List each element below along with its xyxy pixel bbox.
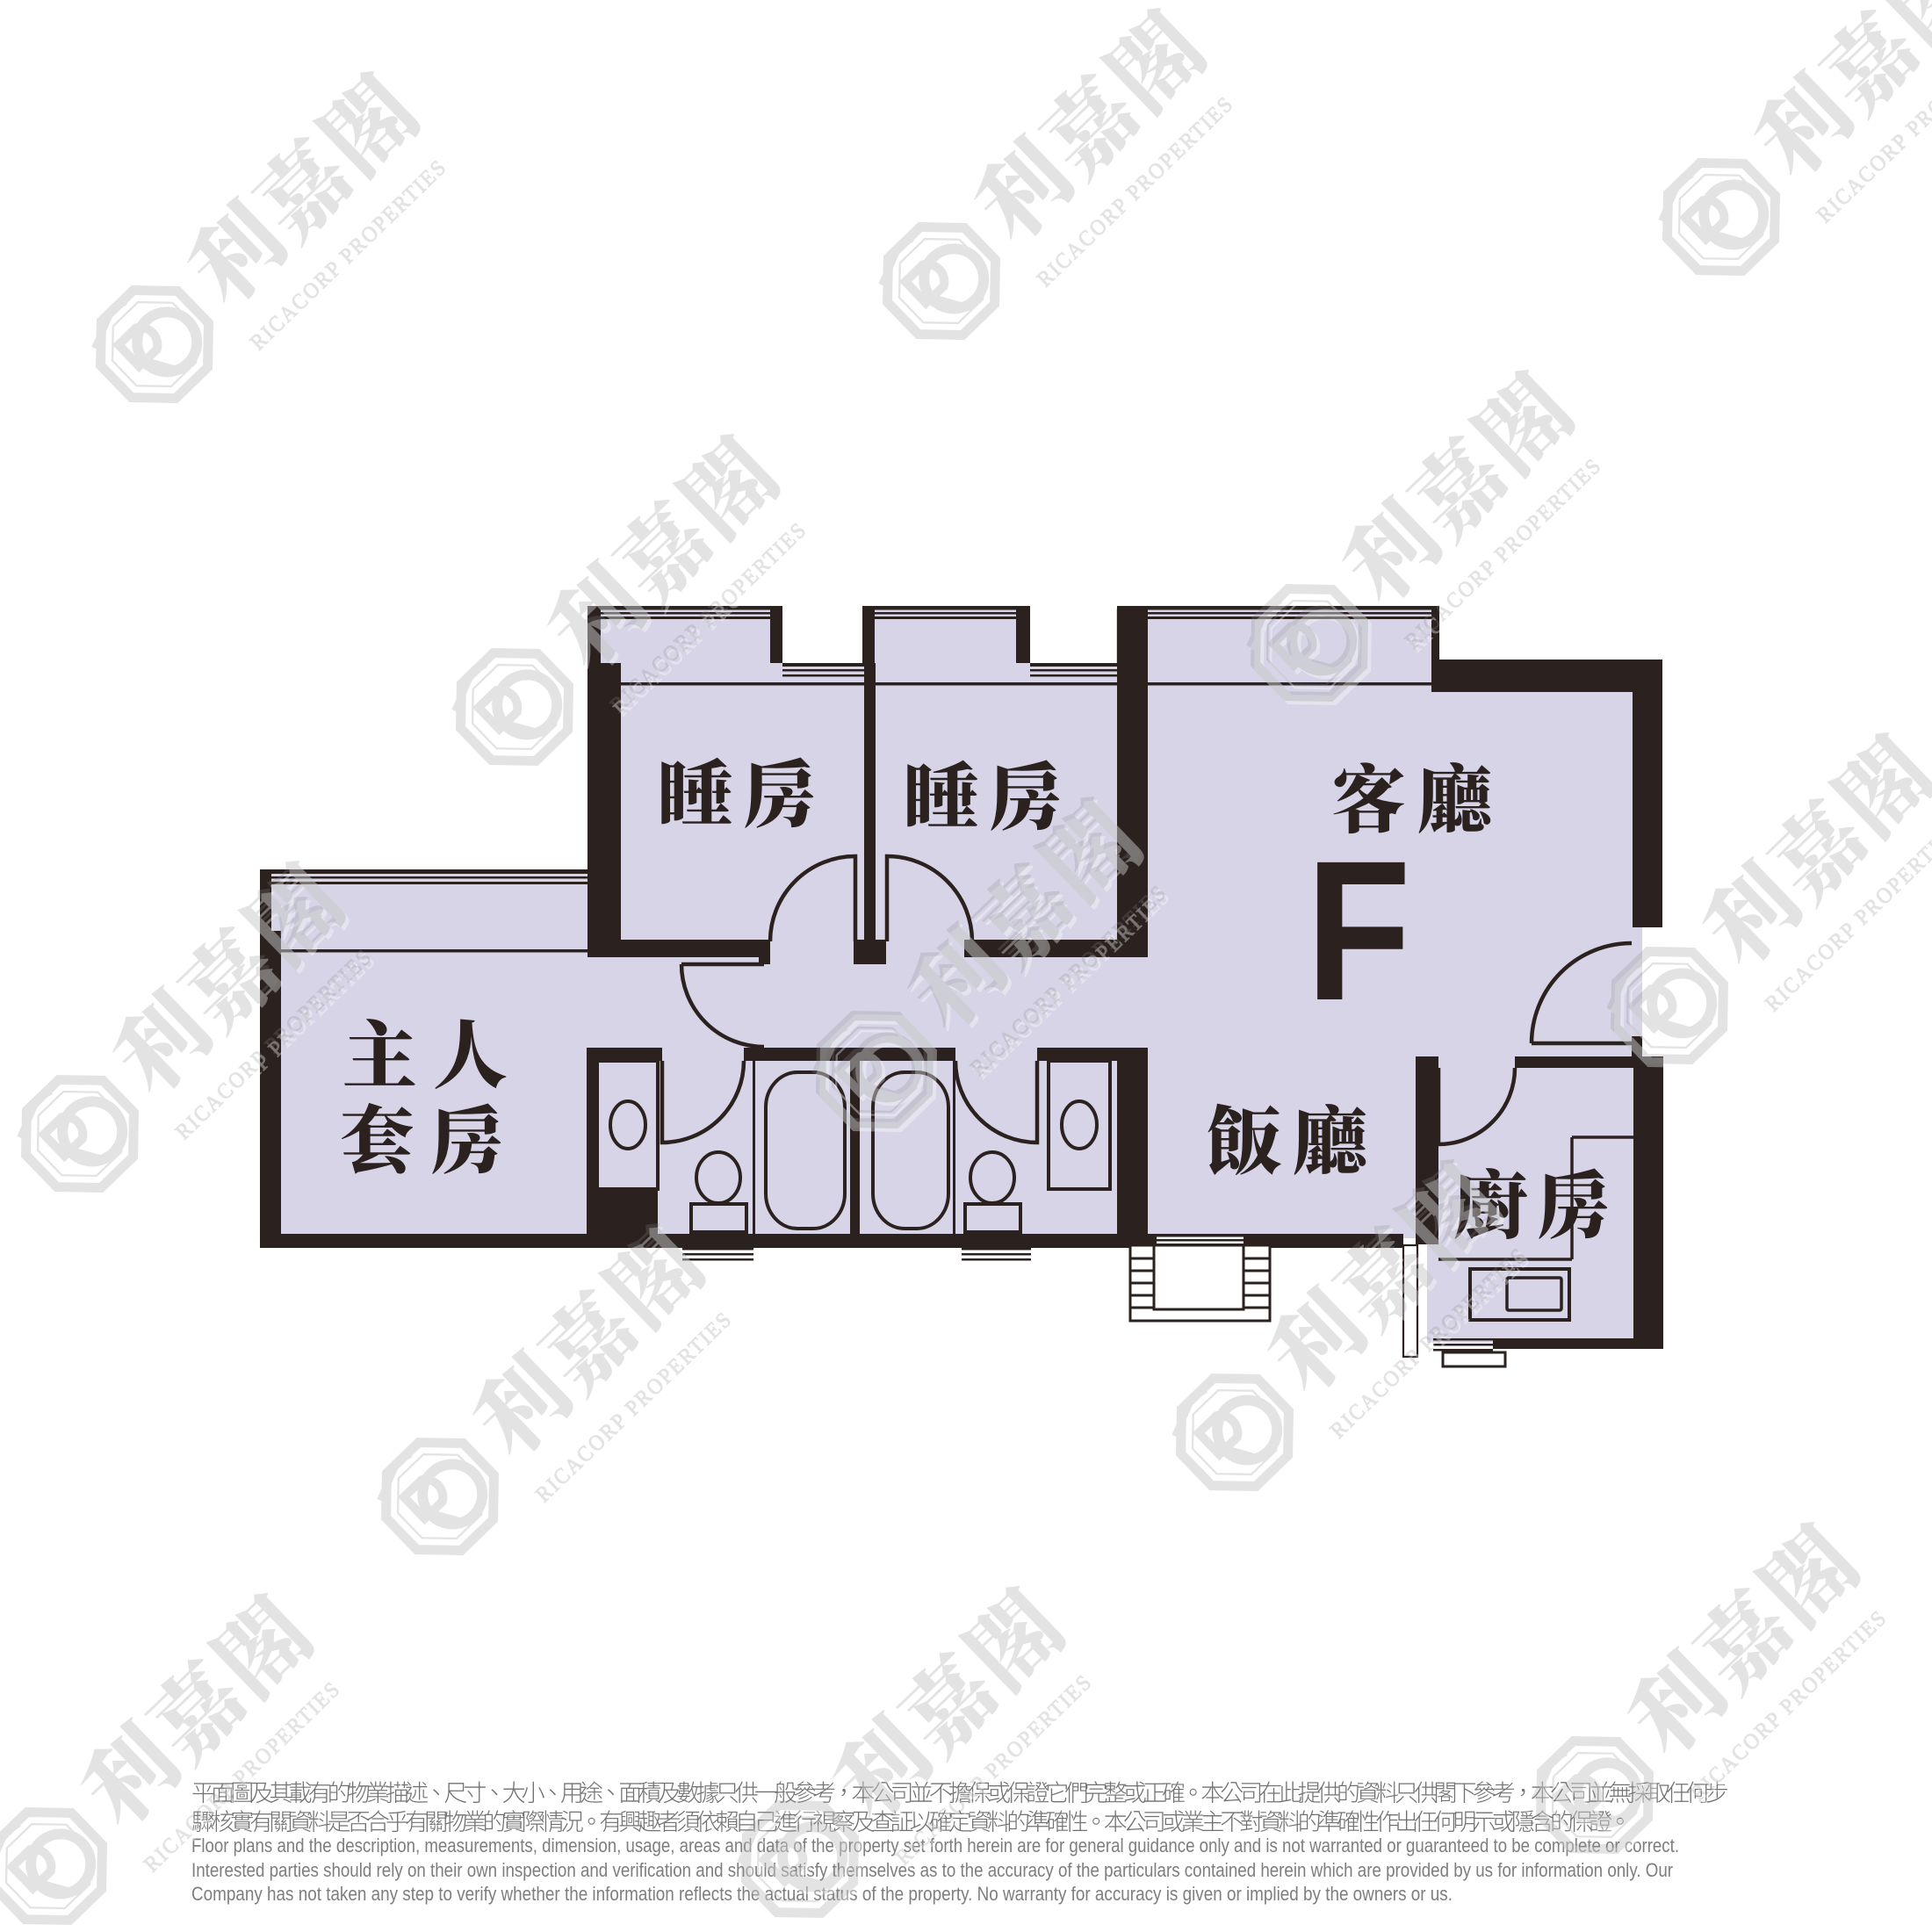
svg-text:Interested parties should rely: Interested parties should rely on their … [191,1859,1673,1881]
